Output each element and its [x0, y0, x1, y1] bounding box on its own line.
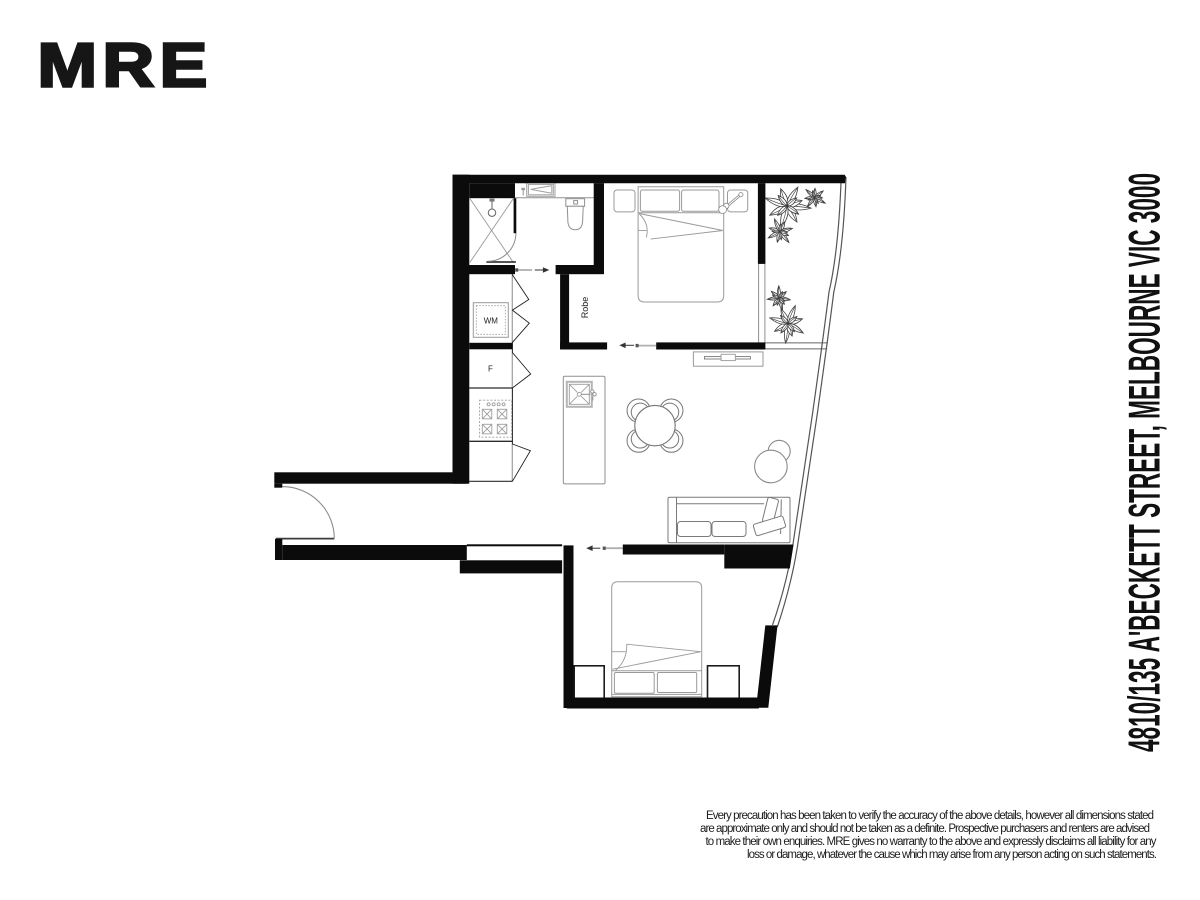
svg-text:are approximate only and shoul: are approximate only and should not be t… [700, 823, 1150, 835]
svg-text:to make their own enquiries. M: to make their own enquiries. MRE gives n… [706, 836, 1157, 848]
svg-text:Every precaution has been take: Every precaution has been taken to verif… [706, 810, 1154, 822]
svg-text:4810/135 A'BECKETT STREET, MEL: 4810/135 A'BECKETT STREET, MELBOURNE VIC… [1121, 173, 1170, 752]
svg-text:loss or damage, whatever the c: loss or damage, whatever the cause which… [747, 849, 1157, 861]
svg-text:WM: WM [484, 317, 499, 326]
svg-text:Robe: Robe [580, 297, 590, 319]
svg-text:MRE: MRE [37, 31, 212, 101]
svg-text:F: F [488, 365, 493, 374]
